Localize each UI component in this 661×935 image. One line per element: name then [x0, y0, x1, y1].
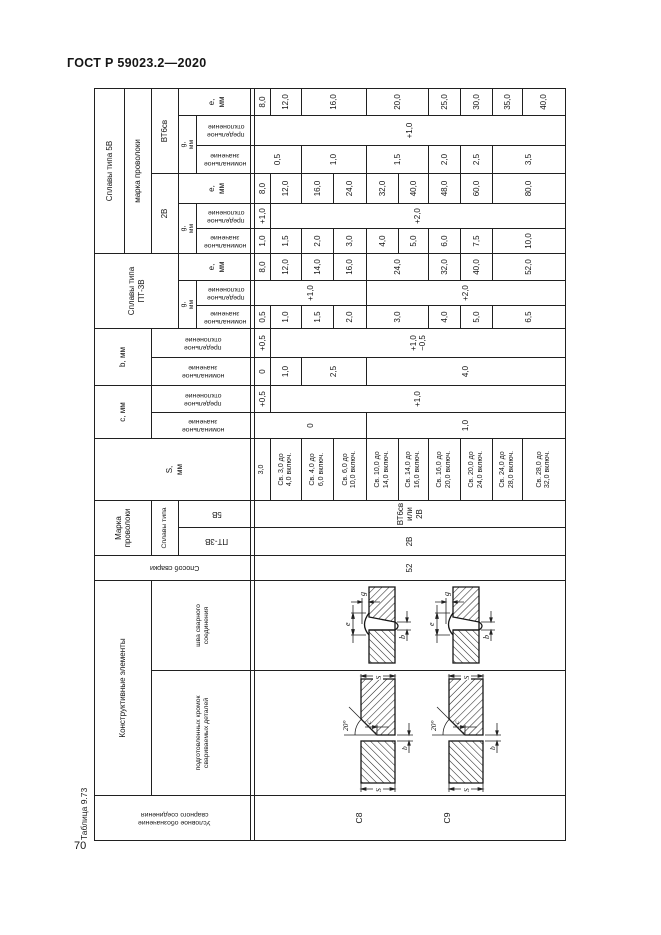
header-seam: шва сварного соединения [151, 580, 255, 671]
header-vt6-g: g, мм [178, 115, 197, 174]
header-b-nominal: номинальное значение [151, 357, 255, 386]
designation-c9: С9 [443, 796, 453, 840]
header-2v-label: 2В [160, 209, 169, 219]
cell-pt_g_pred-r1: +1,0 [254, 280, 367, 306]
header-b: b, мм [94, 328, 152, 386]
svg-text:b: b [398, 636, 407, 640]
header-designation-label: Условное обозначение сварного соединения [138, 810, 210, 826]
method-value-cell: 52 [254, 555, 566, 581]
cell-vt_g_nom-r9: 3,5 [492, 145, 566, 174]
header-edges: подготовленных кромок свариваемых детале… [151, 670, 255, 796]
svg-text:c: c [364, 720, 373, 724]
header-pt-g-deviation: предельное отклонение [196, 280, 255, 306]
cell-s-row4: Св. 6,0 до 10,0 включ. [333, 438, 367, 501]
header-vt6-g-label: g, мм [180, 140, 194, 149]
header-vt6-g-deviation-label: предельное отклонение [207, 123, 244, 139]
header-wire-grade-label: марка проволоки [133, 139, 142, 203]
wire-5v-value-cell: ВТ6св или 2В [254, 500, 566, 528]
cell-pt_g_pred-r5: +2,0 [366, 280, 566, 306]
header-2v-g-deviation: предельное отклонение [196, 203, 255, 229]
document-page: ГОСТ Р 59023.2—2020 70 Таблица 9.73 Усло… [0, 0, 661, 935]
header-pt-g-nominal: номинальное значение [196, 305, 255, 329]
cell-pt_g_nom-r8: 5,0 [460, 305, 493, 329]
cell-v2_g_nom-r1: 1,0 [254, 228, 271, 254]
header-designation: Условное обозначение сварного соединения [94, 795, 255, 841]
header-method-label: Способ сварки [150, 564, 199, 572]
cell-v2_g_nom-r6: 5,0 [398, 228, 429, 254]
cell-s-row5: Св. 10,0 до 14,0 включ. [366, 438, 399, 501]
designation-c8: С8 [355, 796, 365, 840]
seam-diagram-c9: egb [423, 585, 505, 667]
cell-pt_g_nom-r2: 1,0 [270, 305, 302, 329]
header-pt-group: Сплавы типа ПТ-3В [94, 253, 179, 329]
header-vt6-e-label: е, мм [207, 97, 225, 108]
header-vt6-label: ВТ6св [160, 120, 169, 142]
header-c-nominal-label: номинальное значение [182, 418, 224, 434]
cell-b_nom-r3: 2,5 [301, 357, 367, 386]
cell-v2_e-r5: 32,0 [366, 173, 399, 204]
edges-diagram-cell: S S 20° b c S S 20° b c [254, 670, 566, 796]
svg-text:S: S [462, 676, 471, 680]
header-pt-e-label: е, мм [207, 262, 225, 273]
cell-v2_g_nom-r2: 1,5 [270, 228, 302, 254]
svg-text:S: S [374, 676, 383, 680]
svg-text:20°: 20° [341, 721, 350, 732]
header-2v-e: е, мм [178, 173, 255, 204]
header-alloy-pt-label: ПТ-3В [205, 537, 228, 546]
cell-v2_e-r3: 16,0 [301, 173, 334, 204]
header-alloy-pt: ПТ-3В [178, 527, 255, 556]
svg-text:b: b [488, 746, 497, 750]
header-pt-g-nominal-label: номинальное значение [204, 309, 246, 325]
cell-pt_e-r8: 40,0 [460, 253, 493, 281]
cell-vt_e-r1: 8,0 [254, 88, 271, 116]
header-alloy-type-label: Сплавы типа [161, 507, 169, 548]
cell-pt_g_nom-r9: 6,5 [492, 305, 566, 329]
svg-text:e: e [343, 623, 352, 627]
cell-vt_e-r8: 30,0 [460, 88, 493, 116]
header-s: S, мм [94, 438, 255, 501]
header-c-deviation: предельное отклонение [151, 385, 255, 413]
cell-b_nom-r2: 1,0 [270, 357, 302, 386]
cell-s-row2: Св. 3,0 до 4,0 включ. [270, 438, 302, 501]
seam-diagram-c8: egb [339, 585, 421, 667]
cell-pt_g_nom-r3: 1,5 [301, 305, 334, 329]
wire-5v-value: ВТ6св или 2В [396, 503, 424, 525]
cell-pt_e-r4: 16,0 [333, 253, 367, 281]
cell-vt_e-r7: 25,0 [428, 88, 461, 116]
cell-v2_g_nom-r4: 3,0 [333, 228, 367, 254]
svg-text:g: g [358, 593, 367, 597]
header-5v-group: Сплавы типа 5В [94, 88, 125, 254]
cell-v2_g_nom-r8: 7,5 [460, 228, 493, 254]
header-body-double-line [250, 88, 251, 841]
header-constructive: Конструктивные элементы [94, 580, 152, 796]
cell-c_nom-r1: 0 [254, 412, 367, 439]
header-5v-group-label: Сплавы типа 5В [105, 141, 114, 201]
cell-s-row3: Св. 4,0 до 6,0 включ. [301, 438, 334, 501]
cell-b_nom-r5: 4,0 [366, 357, 566, 386]
header-2v: 2В [151, 173, 179, 254]
header-2v-g-deviation-label: предельное отклонение [207, 208, 244, 224]
svg-text:S: S [374, 788, 383, 792]
cell-vt_g_nom-r3: 1,0 [301, 145, 367, 174]
header-alloy-5v-label: 5В [212, 509, 222, 518]
header-2v-g: g, мм [178, 203, 197, 254]
cell-pt_e-r7: 32,0 [428, 253, 461, 281]
cell-v2_e-r4: 24,0 [333, 173, 367, 204]
page-number: 70 [74, 840, 86, 852]
header-2v-g-nominal: номинальное значение [196, 228, 255, 254]
cell-vt_g_pred-r1: +1,0 [254, 115, 566, 146]
edge-prep-diagram-c8: S S 20° b c [337, 673, 423, 793]
header-constructive-label: Конструктивные элементы [118, 638, 127, 737]
cell-pt_e-r3: 14,0 [301, 253, 334, 281]
header-2v-g-label: g, мм [180, 224, 194, 233]
cell-pt_g_nom-r7: 4,0 [428, 305, 461, 329]
cell-v2_e-r9: 80,0 [492, 173, 566, 204]
header-pt-g-label: g, мм [180, 300, 194, 309]
cell-vt_g_nom-r8: 2,5 [460, 145, 493, 174]
svg-text:b: b [400, 746, 409, 750]
cell-v2_g_nom-r7: 6,0 [428, 228, 461, 254]
cell-v2_e-r7: 48,0 [428, 173, 461, 204]
header-s-label: S, мм [165, 464, 183, 475]
header-c: с, мм [94, 385, 152, 439]
cell-pt_e-r1: 8,0 [254, 253, 271, 281]
header-wire-grade: марка проволоки [124, 88, 152, 254]
table-9-73: Таблица 9.73 Условное обозначение сварно… [94, 88, 566, 841]
header-wire-label: Марка проволоки [114, 509, 132, 548]
svg-text:b: b [482, 636, 491, 640]
header-c-deviation-label: предельное отклонение [184, 391, 221, 407]
table-caption: Таблица 9.73 [79, 788, 89, 840]
wire-pt-value: 2В [405, 537, 414, 547]
cell-vt_e-r5: 20,0 [366, 88, 429, 116]
cell-v2_e-r1: 8,0 [254, 173, 271, 204]
cell-pt_e-r5: 24,0 [366, 253, 429, 281]
designation-cell: С8 С9 [254, 795, 566, 841]
cell-b_pred-r2: +1,0 −0,5 [270, 328, 566, 358]
header-pt-g: g, мм [178, 280, 197, 329]
cell-vt_e-r10: 40,0 [522, 88, 566, 116]
cell-c_pred-r1: +0,5 [254, 385, 271, 413]
cell-vt_e-r3: 16,0 [301, 88, 367, 116]
header-vt6: ВТ6св [151, 88, 179, 174]
edge-prep-diagram-c9: S S 20° b c [425, 673, 511, 793]
cell-pt_g_nom-r4: 2,0 [333, 305, 367, 329]
header-pt-group-label: Сплавы типа ПТ-3В [127, 267, 145, 315]
header-vt6-g-nominal-label: номинальное значение [204, 152, 246, 168]
header-method: Способ сварки [94, 555, 255, 581]
cell-vt_e-r2: 12,0 [270, 88, 302, 116]
cell-vt_e-r9: 35,0 [492, 88, 523, 116]
svg-text:S: S [462, 788, 471, 792]
cell-v2_g_nom-r9: 10,0 [492, 228, 566, 254]
cell-v2_g_pred-r1: +1,0 [254, 203, 271, 229]
header-vt6-e: е, мм [178, 88, 255, 116]
header-pt-e: е, мм [178, 253, 255, 281]
wire-pt-value-cell: 2В [254, 527, 566, 556]
header-b-deviation: предельное отклонение [151, 328, 255, 358]
cell-pt_e-r9: 52,0 [492, 253, 566, 281]
header-edges-label: подготовленных кромок свариваемых детале… [195, 696, 211, 771]
cell-v2_g_pred-r2: +2,0 [270, 203, 566, 229]
header-vt6-g-deviation: предельное отклонение [196, 115, 255, 146]
header-b-deviation-label: предельное отклонение [184, 335, 221, 351]
cell-v2_g_nom-r3: 2,0 [301, 228, 334, 254]
header-2v-e-label: е, мм [207, 183, 225, 194]
svg-text:g: g [442, 593, 451, 597]
cell-s-row1: 3,0 [254, 438, 271, 501]
cell-s-row6: Св. 14,0 до 16,0 включ. [398, 438, 429, 501]
method-value: 52 [405, 564, 414, 573]
cell-c_pred-r2: +1,0 [270, 385, 566, 413]
cell-b_pred-r1: +0,5 [254, 328, 271, 358]
svg-text:e: e [427, 623, 436, 627]
rotated-table-wrapper: Таблица 9.73 Условное обозначение сварно… [94, 88, 566, 841]
cell-v2_e-r6: 40,0 [398, 173, 429, 204]
standard-title: ГОСТ Р 59023.2—2020 [67, 56, 206, 70]
header-wire: Марка проволоки [94, 500, 152, 556]
cell-pt_g_nom-r1: 0,5 [254, 305, 271, 329]
header-pt-g-deviation-label: предельное отклонение [207, 285, 244, 301]
cell-c_nom-r5: 1,0 [366, 412, 566, 439]
cell-v2_e-r8: 60,0 [460, 173, 493, 204]
svg-text:c: c [452, 720, 461, 724]
header-b-nominal-label: номинальное значение [182, 364, 224, 380]
header-alloy-type: Сплавы типа [151, 500, 179, 556]
cell-s-row10: Св. 28,0 до 32,0 включ. [522, 438, 566, 501]
header-alloy-5v: 5В [178, 500, 255, 528]
cell-v2_e-r2: 12,0 [270, 173, 302, 204]
svg-text:20°: 20° [429, 721, 438, 732]
header-c-label: с, мм [118, 402, 127, 421]
cell-v2_g_nom-r5: 4,0 [366, 228, 399, 254]
header-2v-g-nominal-label: номинальное значение [204, 233, 246, 249]
cell-vt_g_nom-r5: 1,5 [366, 145, 429, 174]
header-b-label: b, мм [118, 347, 127, 367]
seam-diagram-cell: egb egb [254, 580, 566, 671]
header-vt6-g-nominal: номинальное значение [196, 145, 255, 174]
cell-s-row8: Св. 20,0 до 24,0 включ. [460, 438, 493, 501]
cell-pt_g_nom-r5: 3,0 [366, 305, 429, 329]
cell-vt_g_nom-r1: 0,5 [254, 145, 302, 174]
cell-b_nom-r1: 0 [254, 357, 271, 386]
cell-s-row9: Св. 24,0 до 28,0 включ. [492, 438, 523, 501]
cell-pt_e-r2: 12,0 [270, 253, 302, 281]
header-c-nominal: номинальное значение [151, 412, 255, 439]
cell-vt_g_nom-r7: 2,0 [428, 145, 461, 174]
cell-s-row7: Св. 16,0 до 20,0 включ. [428, 438, 461, 501]
header-seam-label: шва сварного соединения [195, 604, 211, 647]
